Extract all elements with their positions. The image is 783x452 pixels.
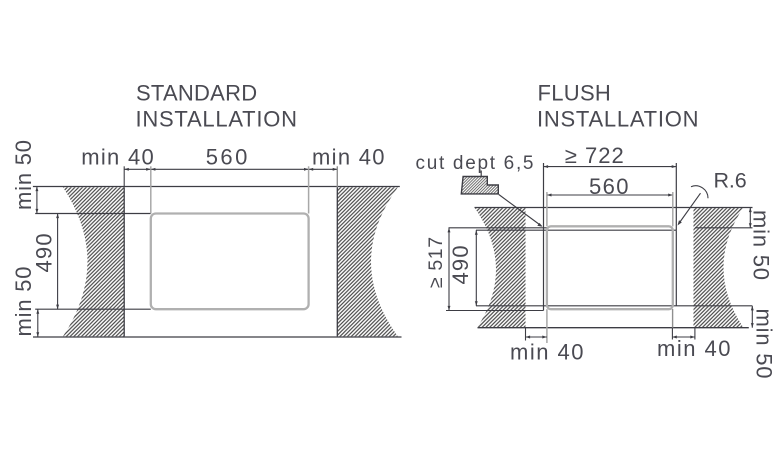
svg-text:min 50: min 50 bbox=[11, 139, 36, 210]
svg-text:≥ 517: ≥ 517 bbox=[425, 236, 447, 288]
svg-text:INSTALLATION: INSTALLATION bbox=[136, 106, 298, 131]
svg-text:INSTALLATION: INSTALLATION bbox=[537, 106, 699, 131]
svg-text:min 50: min 50 bbox=[752, 309, 777, 380]
svg-text:560: 560 bbox=[206, 145, 250, 170]
svg-text:min 40: min 40 bbox=[312, 145, 386, 170]
svg-text:min 50: min 50 bbox=[749, 210, 774, 281]
svg-text:R.6: R.6 bbox=[714, 169, 747, 193]
svg-text:STANDARD: STANDARD bbox=[136, 81, 257, 106]
svg-text:560: 560 bbox=[589, 174, 630, 199]
svg-text:min 40: min 40 bbox=[510, 340, 585, 365]
svg-text:cut dept 6,5: cut dept 6,5 bbox=[416, 153, 536, 174]
svg-text:min 40: min 40 bbox=[657, 336, 732, 361]
svg-text:FLUSH: FLUSH bbox=[538, 81, 612, 106]
svg-text:≥ 722: ≥ 722 bbox=[565, 143, 625, 168]
svg-text:min 40: min 40 bbox=[81, 145, 155, 170]
svg-text:490: 490 bbox=[448, 244, 473, 284]
svg-text:min 50: min 50 bbox=[11, 266, 36, 337]
